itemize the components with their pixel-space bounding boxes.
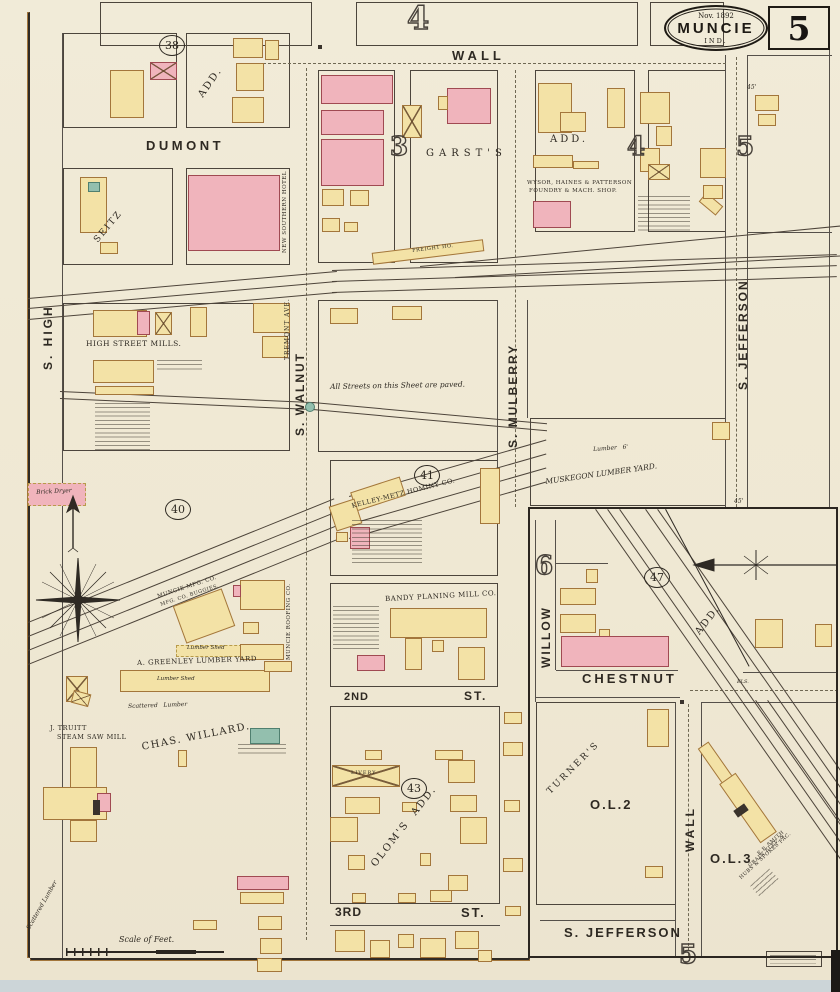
- building-frame: [458, 647, 485, 680]
- building-frame: [264, 661, 292, 672]
- compass-rose-icon: [30, 552, 126, 648]
- block-38: 38: [159, 35, 185, 56]
- building-frame: [330, 308, 358, 324]
- yard-lumber-shed-2: Lumber Shed: [157, 677, 195, 683]
- biz-high-street-mills: HIGH STREET MILLS.: [86, 340, 181, 348]
- street-edge-line: [527, 300, 528, 418]
- building-frame: [640, 92, 670, 124]
- building-brick: [321, 110, 384, 135]
- area-garsts: GARST'S: [426, 149, 507, 159]
- yard-scattered-2: Scattered Lumber: [26, 880, 59, 931]
- building-frame: [352, 893, 366, 903]
- street-3rd: 3RD: [335, 906, 362, 918]
- biz-livery: LIVERY: [351, 771, 376, 776]
- block-41: 41: [414, 465, 440, 486]
- yard-scattered-1: Scattered Lumber: [128, 702, 187, 710]
- building-frame: [450, 795, 477, 812]
- building-frame: [755, 95, 779, 111]
- building-mark: [318, 45, 322, 49]
- building-frame: [335, 930, 365, 952]
- building-frame: [110, 70, 144, 118]
- biz-greenley: A. GREENLEY LUMBER YARD: [137, 656, 257, 667]
- fine-print-notes: [238, 744, 286, 754]
- north-arrow-icon: [60, 496, 86, 552]
- building-frame: [448, 875, 468, 891]
- building-frame: [236, 63, 264, 91]
- building-frame: [322, 218, 340, 232]
- building-frame: [700, 148, 726, 178]
- street-tremont: TREMONT AVE.: [285, 298, 291, 360]
- building-frame: [405, 638, 422, 670]
- building-frame: [480, 468, 500, 524]
- building-frame: [190, 307, 207, 337]
- building-frame: [390, 608, 487, 638]
- building-frame: [392, 306, 422, 320]
- biz-muncie-roofing: MUNCIE ROOFING CO.: [287, 584, 293, 660]
- scale-label: Scale of Feet.: [119, 936, 174, 944]
- building-frame: [232, 97, 264, 123]
- street-centerline: [306, 68, 307, 940]
- numeral-3: 3: [390, 134, 408, 160]
- building-frame: [460, 817, 487, 844]
- building-frame: [503, 742, 523, 756]
- building-frame: [438, 96, 448, 110]
- numeral-5-right: 5: [736, 134, 754, 160]
- sheet-number-box: 5: [768, 6, 830, 50]
- building-frame: [430, 890, 452, 902]
- building-frame: [703, 185, 723, 199]
- building-frame: [258, 916, 282, 930]
- scale-bar: [66, 948, 224, 956]
- building-mark: [93, 800, 100, 815]
- map-date: Nov. 1892: [698, 12, 734, 20]
- building-frame: [420, 853, 431, 866]
- map-state: IND.: [704, 37, 727, 45]
- fine-print-notes: [352, 520, 422, 566]
- building-frame: [336, 532, 348, 542]
- building-frame: [70, 820, 97, 842]
- building-frame: [233, 38, 263, 58]
- street-dumont: DUMONT: [146, 139, 224, 152]
- map-paper: WALLDUMONTS. HIGHTREMONT AVE.S. WALNUTS.…: [0, 0, 840, 980]
- building-frame: [560, 112, 586, 132]
- building-frame: [345, 797, 380, 814]
- biz-truitt-2: STEAM SAW MILL: [57, 734, 126, 741]
- biz-new-southern-hotel: NEW SOUTHERN HOTEL: [283, 171, 289, 253]
- sheet-edge-bar: [831, 950, 840, 992]
- fine-print-notes: [638, 196, 690, 232]
- building-frame: [420, 938, 446, 958]
- building-frame: [155, 312, 172, 335]
- building-frame: [398, 934, 414, 948]
- building-frame: [95, 386, 154, 395]
- numeral-4-top: 4: [407, 2, 429, 34]
- street-2nd-st: ST.: [464, 690, 487, 702]
- building-brick: [188, 175, 280, 251]
- building-frame: [100, 242, 118, 254]
- building-brick: [237, 876, 289, 890]
- sheet-number: 5: [788, 9, 811, 48]
- building-frame: [455, 931, 479, 949]
- map-city: MUNCIE: [677, 20, 754, 37]
- tick-45-b: 45': [734, 499, 743, 505]
- area-add-4: ADD.: [550, 135, 588, 145]
- building-frame: [370, 940, 390, 958]
- street-centerline: [258, 63, 726, 64]
- map-sheet: WALLDUMONTS. HIGHTREMONT AVE.S. WALNUTS.…: [0, 0, 840, 992]
- tick-45-a: 45': [747, 85, 756, 91]
- building-brick: [357, 655, 385, 671]
- building-frame: [332, 765, 400, 787]
- fine-print-notes: [157, 360, 202, 372]
- building-frame: [504, 712, 522, 724]
- building-frame: [365, 750, 382, 760]
- map-title-oval: Nov. 1892 MUNCIE IND.: [664, 5, 768, 51]
- building-frame: [93, 360, 154, 383]
- building-frame: [257, 958, 282, 972]
- building-frame: [758, 114, 776, 126]
- building-frame: [573, 161, 599, 169]
- building-frame: [120, 670, 270, 692]
- street-edge-line: [330, 925, 500, 926]
- building-special: [88, 182, 100, 192]
- building-brick: [233, 585, 241, 597]
- building-frame: [330, 817, 358, 842]
- fine-print-notes: [95, 403, 150, 451]
- building-frame: [505, 906, 521, 916]
- building-frame: [503, 858, 523, 872]
- block-40: 40: [165, 499, 191, 520]
- building-frame: [240, 580, 285, 610]
- building-brick: [137, 311, 150, 335]
- fine-print-notes: [333, 606, 379, 650]
- city-block-outline: [356, 2, 638, 46]
- building-brick: [321, 75, 393, 104]
- building-brick: [447, 88, 491, 124]
- block-43: 43: [401, 778, 427, 799]
- area-chas-willard: CHAS. WILLARD.: [141, 722, 251, 753]
- street-edge-line: [829, 50, 830, 507]
- yard-lumber-shed-1: Lumber Shed: [187, 646, 225, 652]
- building-frame: [448, 760, 475, 783]
- street-s-walnut: S. WALNUT: [294, 352, 306, 436]
- building-frame: [243, 622, 259, 634]
- building-brick: [321, 139, 384, 186]
- building-frame: [193, 920, 217, 930]
- building-frame: [504, 800, 520, 812]
- building-frame: [260, 938, 282, 954]
- building-special: [250, 728, 280, 744]
- building-brick: [533, 201, 571, 228]
- building-frame: [178, 750, 187, 767]
- building-frame: [656, 126, 672, 146]
- biz-truitt-1: J. TRUITT: [50, 725, 87, 732]
- numeral-4: 4: [627, 134, 645, 160]
- building-frame: [350, 190, 369, 206]
- building-frame: [71, 690, 92, 707]
- street-3rd-st: ST.: [461, 906, 486, 919]
- street-s-mulberry: S. MULBERRY: [507, 344, 519, 448]
- building-frame: [648, 164, 670, 180]
- building-frame: [435, 750, 463, 760]
- inset-arrow-icon: [694, 548, 840, 582]
- building-frame: [607, 88, 625, 128]
- street-edge-line: [748, 55, 832, 56]
- building-frame: [478, 950, 492, 962]
- building-brick: [150, 62, 177, 80]
- building-frame: [712, 422, 730, 440]
- street-2nd: 2ND: [344, 692, 369, 703]
- building-frame: [344, 222, 358, 232]
- building-frame: [265, 40, 279, 60]
- building-frame: [432, 640, 444, 652]
- biz-wysor-1: WYSOR, HAINES & PATTERSON: [527, 181, 632, 187]
- street-wall: WALL: [452, 49, 505, 62]
- city-block-outline: [530, 418, 726, 506]
- building-frame: [398, 893, 416, 903]
- biz-wysor-2: FOUNDRY & MACH. SHOP.: [529, 189, 617, 195]
- building-frame: [240, 892, 284, 904]
- building-frame: [533, 155, 573, 168]
- building-frame: [322, 189, 344, 206]
- street-s-high: S. HIGH: [42, 304, 54, 370]
- building-frame: [348, 855, 365, 870]
- street-s-jefferson: S. JEFFERSON: [737, 279, 749, 390]
